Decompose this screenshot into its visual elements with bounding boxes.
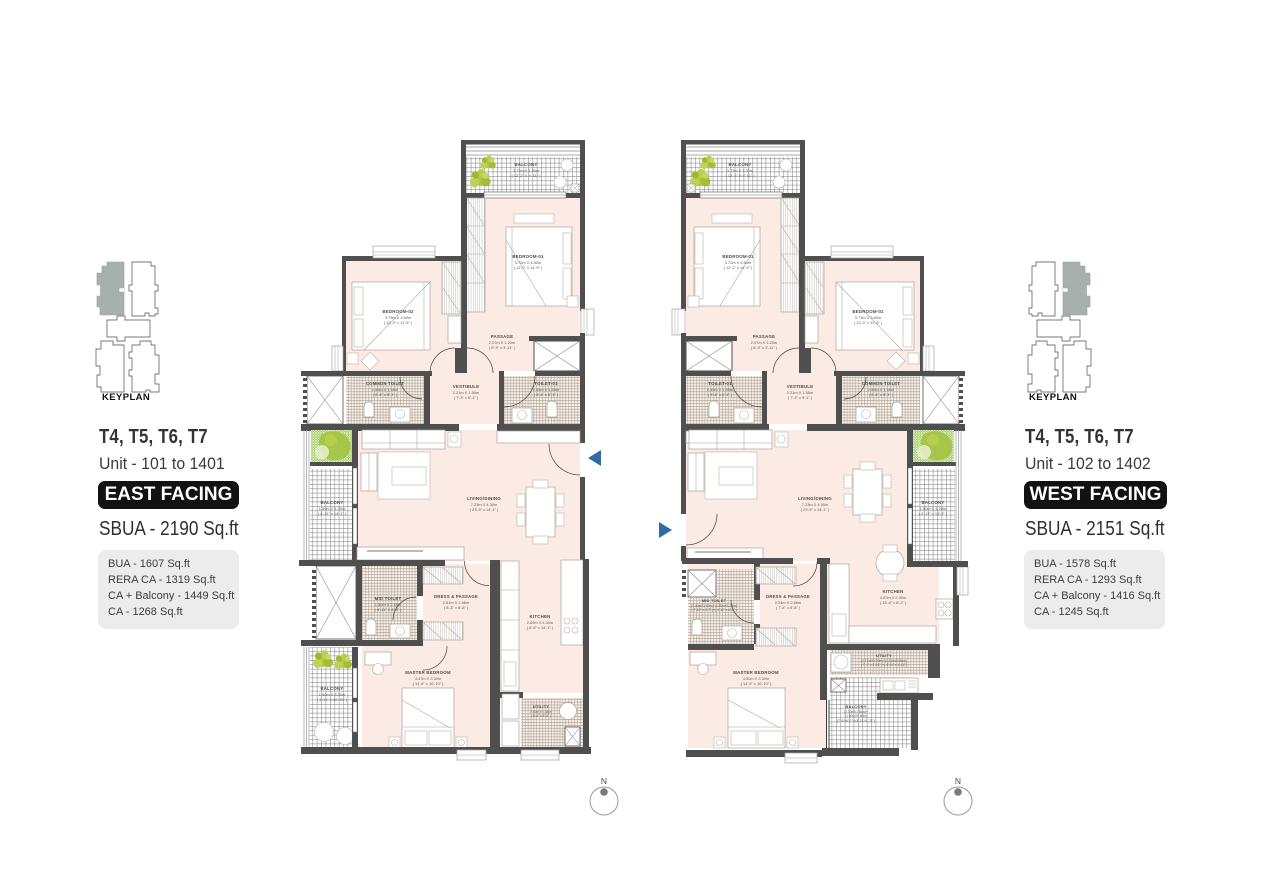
svg-text:( 13'-4" x 8'-2" ): ( 13'-4" x 8'-2" )	[880, 600, 907, 605]
svg-text:( 7'-3" x 5'-1" ): ( 7'-3" x 5'-1" )	[454, 395, 479, 400]
svg-text:( 8'-3" x 8'-8" ): ( 8'-3" x 8'-8" )	[444, 605, 469, 610]
svg-text:( 8'-6" x 5'-5" ): ( 8'-6" x 5'-5" )	[531, 714, 551, 718]
svg-text:VESTIBULE: VESTIBULE	[787, 384, 813, 389]
svg-text:( 12'-2" x 14'-9" ): ( 12'-2" x 14'-9" )	[514, 265, 543, 270]
svg-text:( 6'-9" x 3'-11" ): ( 6'-9" x 3'-11" )	[751, 345, 778, 350]
svg-text:PASSAGE: PASSAGE	[753, 334, 776, 339]
svg-text:( 12'-3" x 11'-9" ): ( 12'-3" x 11'-9" )	[384, 320, 413, 325]
svg-text:BEDROOM-02: BEDROOM-02	[852, 309, 884, 314]
svg-text:LIVING/DINING: LIVING/DINING	[467, 496, 501, 501]
svg-text:( 7'-10" x 4'-7" )+( 4'-11" x: ( 7'-10" x 4'-7" )+( 4'-11" x 4'-1" )	[691, 608, 736, 612]
svg-text:UTILITY: UTILITY	[876, 654, 892, 658]
svg-text:N: N	[955, 776, 961, 786]
svg-text:( 8'-4" x 5'-1" ): ( 8'-4" x 5'-1" )	[373, 392, 398, 397]
svg-text:( 7'-3" x 5'-1" ): ( 7'-3" x 5'-1" )	[788, 395, 813, 400]
svg-text:( 12'-3" x 11'-9" ): ( 12'-3" x 11'-9" )	[854, 320, 883, 325]
svg-text:BALCONY: BALCONY	[845, 704, 866, 709]
svg-text:DRESS & PASSAGE: DRESS & PASSAGE	[434, 594, 478, 599]
svg-text:( 23'-9" x 14'-1" ): ( 23'-9" x 14'-1" )	[470, 507, 499, 512]
svg-text:( 14'-8" x 10'-10" ): ( 14'-8" x 10'-10" )	[413, 681, 445, 686]
svg-text:VESTIBULE: VESTIBULE	[453, 384, 479, 389]
svg-text:( 8'-6" x 14'-1" ): ( 8'-6" x 14'-1" )	[527, 625, 554, 630]
svg-text:( 7'-4" x 8'-8" ): ( 7'-4" x 8'-8" )	[776, 605, 801, 610]
svg-text:TOILET-01: TOILET-01	[708, 381, 732, 386]
svg-text:LIVING/DINING: LIVING/DINING	[798, 496, 832, 501]
svg-text:BALCONY: BALCONY	[921, 500, 944, 505]
svg-text:(1.50mX0.60m): (1.50mX0.60m)	[845, 714, 867, 718]
svg-text:KITCHEN: KITCHEN	[883, 589, 904, 594]
svg-text:( 8'-4" x 5'-1" ): ( 8'-4" x 5'-1" )	[534, 392, 559, 397]
svg-text:BALCONY: BALCONY	[320, 500, 343, 505]
svg-text:( 4'-11" x 14'-1" ): ( 4'-11" x 14'-1" )	[318, 511, 347, 516]
svg-text:N: N	[601, 776, 607, 786]
svg-text:COMMON TOILET: COMMON TOILET	[862, 381, 900, 386]
svg-text:COMMON TOILET: COMMON TOILET	[366, 381, 404, 386]
svg-text:MASTER BEDROOM: MASTER BEDROOM	[405, 670, 451, 675]
svg-text:BEDROOM-01: BEDROOM-01	[512, 254, 544, 259]
svg-text:UTILITY: UTILITY	[533, 704, 550, 709]
svg-text:MID TOILET: MID TOILET	[702, 598, 727, 603]
svg-text:( 23'-9" x 14'-1" ): ( 23'-9" x 14'-1" )	[801, 507, 830, 512]
svg-text:( 4'-11" x 10'-10" ): ( 4'-11" x 10'-10" )	[317, 697, 348, 702]
svg-text:( 12'-2" x 14'-9" ): ( 12'-2" x 14'-9" )	[724, 265, 753, 270]
svg-text:( 6'-9" x 3'-11" ): ( 6'-9" x 3'-11" )	[489, 345, 516, 350]
svg-text:( 12'-2" X 4'-11" ): ( 12'-2" X 4'-11" )	[725, 173, 755, 178]
svg-text:BALCONY: BALCONY	[320, 686, 343, 691]
svg-text:KITCHEN: KITCHEN	[530, 614, 551, 619]
svg-text:DRESS & PASSAGE: DRESS & PASSAGE	[766, 594, 810, 599]
svg-text:(7'-6"x6'-0")+(4'-11"x1'-11"): (7'-6"x6'-0")+(4'-11"x1'-11")	[837, 719, 875, 723]
svg-text:BALCONY: BALCONY	[728, 162, 751, 167]
svg-text:BEDROOM-02: BEDROOM-02	[382, 309, 414, 314]
svg-text:( 4'-11" X 8'-4" ): ( 4'-11" X 8'-4" )	[375, 607, 403, 612]
svg-text:BEDROOM-01: BEDROOM-01	[722, 254, 754, 259]
svg-text:MASTER BEDROOM: MASTER BEDROOM	[733, 670, 779, 675]
svg-text:BALCONY: BALCONY	[514, 162, 537, 167]
svg-text:PASSAGE: PASSAGE	[491, 334, 514, 339]
svg-text:( 7'-1" x 2'-11" )+( 4'-11" x: ( 7'-1" x 2'-11" )+( 4'-11" x 1'-11" )	[861, 663, 907, 667]
svg-text:MID TOILET: MID TOILET	[375, 596, 402, 601]
svg-text:( 12'-2" X 4'-11" ): ( 12'-2" X 4'-11" )	[511, 173, 541, 178]
svg-text:( 8'-4" x 5'-1" ): ( 8'-4" x 5'-1" )	[869, 392, 894, 397]
svg-text:( 4'-11" x 13'-9" ): ( 4'-11" x 13'-9" )	[919, 511, 948, 516]
svg-text:( 8'-4" x 5'-1" ): ( 8'-4" x 5'-1" )	[708, 392, 733, 397]
svg-text:( 14'-9" x 10'-10" ): ( 14'-9" x 10'-10" )	[741, 681, 773, 686]
svg-text:TOILET-01: TOILET-01	[534, 381, 558, 386]
